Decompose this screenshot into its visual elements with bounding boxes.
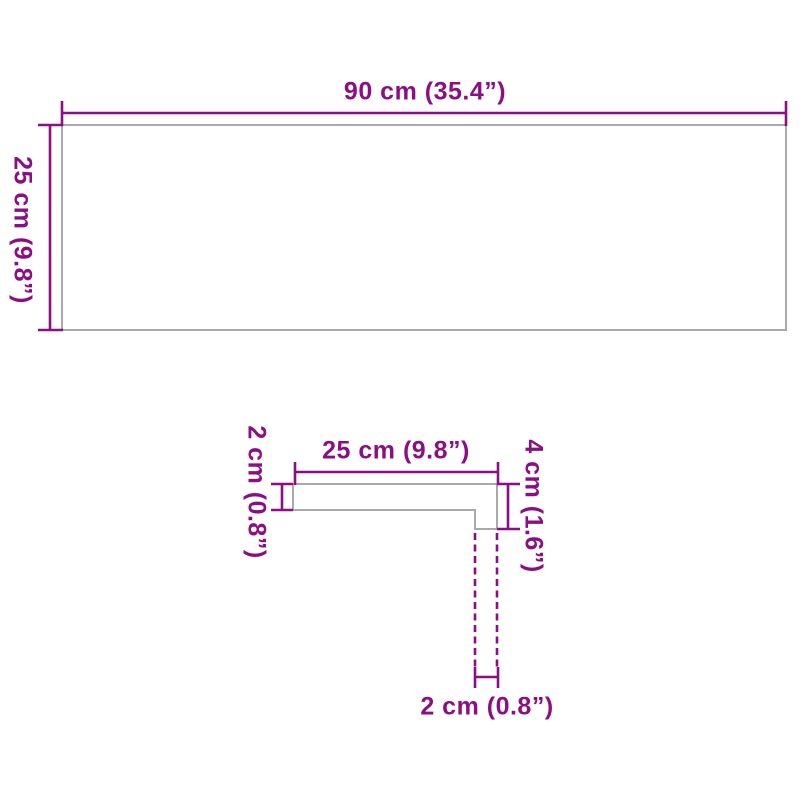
profile-right-height-dimension-line [497, 484, 520, 529]
profile-width-dimension-line [295, 462, 498, 485]
profile-left-thickness-label: 2 cm (0.8”) [244, 425, 269, 558]
profile-extension-dashed-lines [475, 533, 497, 668]
board-height-dimension-line [38, 125, 63, 330]
board-width-label: 90 cm (35.4”) [344, 80, 506, 105]
profile-bottom-thickness-label: 2 cm (0.8”) [420, 695, 553, 720]
board-height-label: 25 cm (9.8”) [10, 156, 35, 304]
diagram-linework [0, 0, 800, 800]
profile-left-thickness-dimension-line [271, 484, 293, 510]
board-outline [62, 125, 786, 330]
profile-outline [293, 484, 497, 529]
profile-bottom-thickness-dimension-line [475, 667, 498, 688]
profile-width-label: 25 cm (9.8”) [322, 439, 470, 464]
profile-right-height-label: 4 cm (1.6”) [521, 439, 546, 572]
product-dimension-diagram: 90 cm (35.4”) 25 cm (9.8”) 25 cm (9.8”) … [0, 0, 800, 800]
